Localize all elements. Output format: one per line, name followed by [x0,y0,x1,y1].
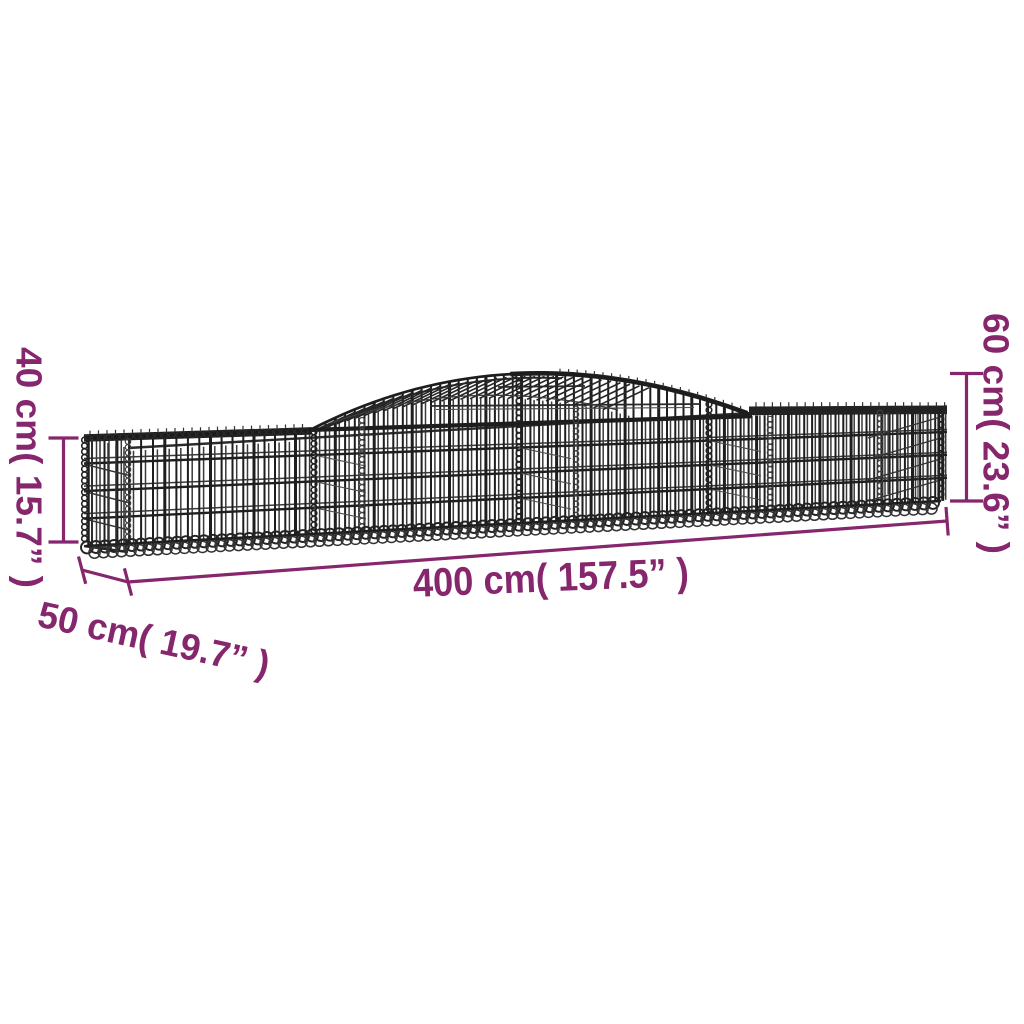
svg-text:60 cm( 23.6” ): 60 cm( 23.6” ) [976,313,1017,554]
svg-text:40 cm( 15.7” ): 40 cm( 15.7” ) [9,347,50,588]
